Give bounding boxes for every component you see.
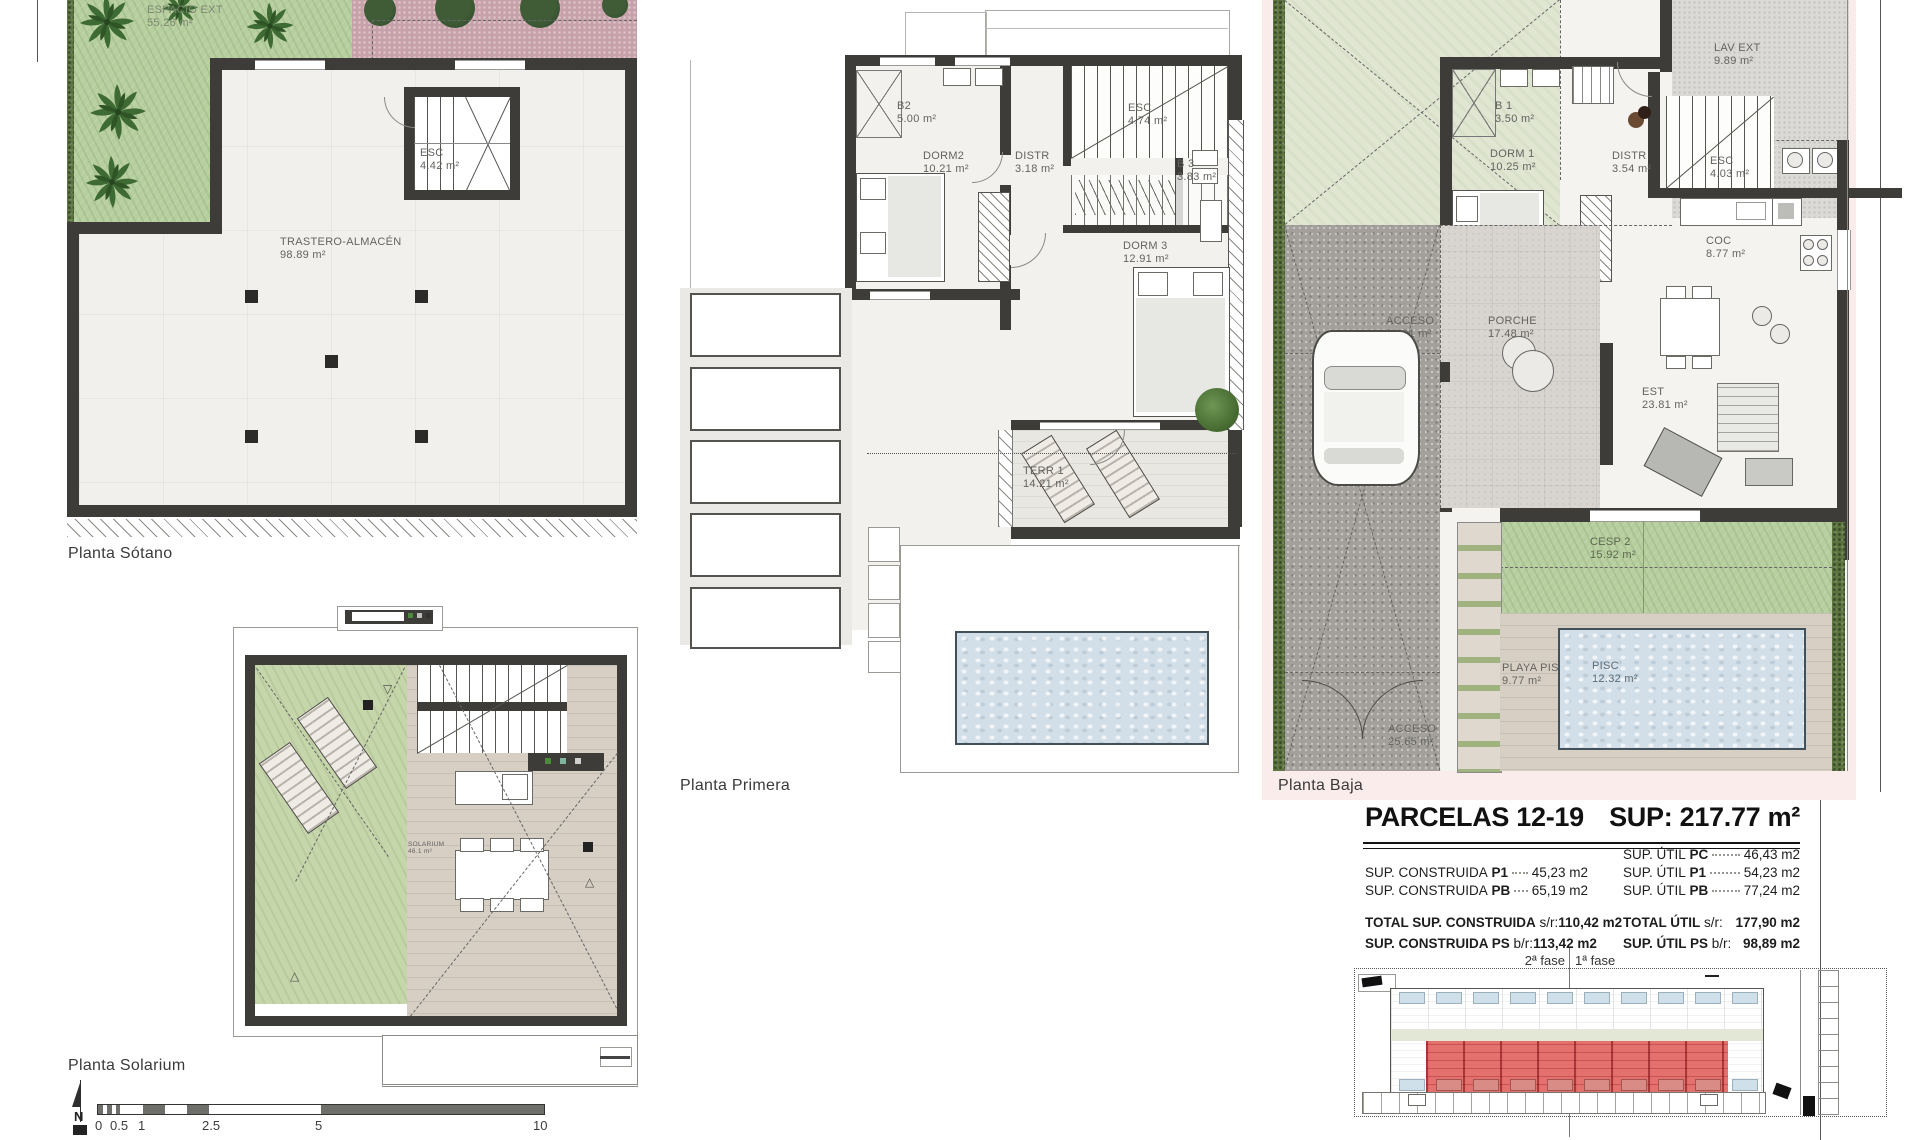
parking-bay (690, 440, 841, 504)
dotted-leader (1712, 890, 1739, 892)
entry-closet (1572, 66, 1614, 104)
frame-left-mark (37, 0, 38, 62)
wall-segment (1228, 55, 1242, 120)
small-store-box (868, 527, 900, 562)
room-label-coc: COC8.77 m² (1706, 235, 1745, 261)
slope-triangle: △ (290, 970, 299, 982)
road-line (1838, 970, 1839, 1115)
stair-landing-line (414, 143, 510, 144)
wall-segment (625, 58, 637, 517)
room-label-distr: DISTR3.54 m² (1612, 150, 1651, 176)
roof-drain (363, 700, 373, 710)
plan-planta-primera: B25.00 m² DORM210.21 m² DISTR3.18 m² ESC… (680, 0, 1240, 795)
kitchen-appliance-inner (1778, 203, 1794, 219)
palm-tree-icon (77, 0, 137, 52)
kitchen-dot (575, 758, 581, 764)
site-unit-pool-red (1436, 1079, 1462, 1091)
side-steps (1457, 522, 1502, 773)
sliding-door-gap (1590, 510, 1700, 522)
wall-segment (245, 655, 255, 1026)
room-label-esc: ESC4.74 m² (1128, 102, 1167, 128)
patio-dashed-border (372, 20, 637, 21)
wall-segment (245, 1016, 627, 1026)
site-unit-pool (1473, 992, 1499, 1004)
window-gap (1837, 230, 1851, 290)
site-unit-pool (1584, 992, 1610, 1004)
wall-segment (617, 655, 627, 1026)
summary-title: PARCELAS 12-19 (1365, 802, 1584, 833)
dotted-leader (1512, 872, 1528, 874)
row-label: SUP. ÚTIL P1 (1623, 865, 1706, 880)
deck-drain (583, 842, 593, 852)
car-windshield (1324, 366, 1406, 390)
scale-bar-segment (143, 1105, 165, 1114)
window-gap (955, 57, 1010, 66)
scale-tick-label: 1 (138, 1118, 145, 1133)
scale-bar-segment (98, 1105, 103, 1114)
chair (490, 838, 514, 852)
bathroom-fixture (943, 68, 971, 86)
wall-segment (67, 222, 222, 234)
kitchen-sink (1736, 202, 1766, 220)
roof-outline-line (985, 28, 1228, 29)
summary-sup-total: SUP: 217.77 m² (1600, 802, 1800, 833)
site-unit-pool-red (1473, 1079, 1499, 1091)
site-unit-pool (1695, 992, 1721, 1004)
sidewalk-detail (1700, 1094, 1718, 1106)
wall-segment (67, 505, 637, 517)
hedge-strip (1832, 522, 1845, 771)
table-total-row: TOTAL ÚTIL s/r:177,90 m2 (1623, 915, 1800, 930)
scale-bar-segment (107, 1105, 112, 1114)
dog-figure (1638, 106, 1651, 119)
round-table (1512, 350, 1554, 392)
scalebar-group: N 0 0.5 1 2.5 5 10 (60, 1075, 560, 1135)
bathroom-fixture (1500, 69, 1528, 87)
dotted-leader (1712, 854, 1739, 856)
room-label-espacio-ext: ESPACIO EXT55.26 m² (147, 4, 223, 30)
bathroom-fixture (1532, 69, 1560, 87)
dining-table (1660, 298, 1720, 356)
plan-planta-baja: LAV EXT9.89 m² B 13.50 m² ESC4.03 m² DIS… (1262, 0, 1856, 800)
row-label: TOTAL SUP. CONSTRUIDA s/r: (1365, 915, 1558, 930)
small-store-box (868, 603, 900, 638)
lawn-dashed-line (1500, 567, 1832, 568)
slope-triangle: △ (585, 876, 594, 888)
wall-segment (845, 55, 856, 300)
wall-segment (245, 655, 627, 665)
scale-tick-label: 0 (95, 1118, 102, 1133)
chair (1692, 286, 1712, 299)
wall-segment (67, 222, 79, 517)
garden-dashed-edge (1560, 0, 1561, 180)
frame-right-line-upper (1880, 0, 1881, 792)
site-unit-pool (1732, 1079, 1758, 1091)
burner (1803, 255, 1814, 266)
bed-blanket (888, 176, 941, 277)
chair (1692, 356, 1712, 369)
site-garden-band (1391, 1029, 1763, 1041)
scale-tick-label: 5 (315, 1118, 322, 1133)
washer-drum (1817, 152, 1833, 168)
shower (1452, 69, 1496, 137)
planter-dot (426, 613, 431, 618)
patio-dashed-border (372, 20, 373, 60)
room-label-dorm3: DORM 312.91 m² (1123, 240, 1169, 266)
site-unit-pool (1732, 992, 1758, 1004)
room-label-solarium: SOLARIUM46.1 m² (408, 841, 444, 855)
dotted-leader (1710, 872, 1740, 874)
site-unit-pool-red (1621, 1079, 1647, 1091)
window-gap (870, 291, 930, 300)
lawn-seam (1643, 522, 1644, 613)
outdoor-kitchen-bar (528, 753, 604, 771)
plan-planta-sotano: ESPACIO EXT55.26 m² ESC4.42 m² TRASTERO-… (67, 0, 637, 565)
site-unit-pool-red (1695, 1079, 1721, 1091)
road-lane-ticks (1818, 970, 1838, 1115)
kitchen-dot (545, 758, 551, 764)
swimming-pool (955, 631, 1209, 745)
bathroom-cabinet (1200, 200, 1222, 242)
scale-bar-segment (321, 1105, 544, 1114)
room-label-esc: ESC4.03 m² (1710, 155, 1749, 181)
pillow (1138, 272, 1168, 296)
north-label: N (74, 1109, 83, 1124)
car-icon (1312, 330, 1420, 486)
room-label-terr1: TERR 114.21 m² (1023, 465, 1069, 491)
wardrobe (978, 192, 1010, 282)
row-label: SUP. CONSTRUIDA P1 (1365, 865, 1508, 880)
site-unit-pool-red (1547, 1079, 1573, 1091)
site-unit-pool (1547, 992, 1573, 1004)
wall-segment (1660, 0, 1672, 72)
title-rule (1363, 842, 1800, 844)
row-value: 54,23 m2 (1744, 865, 1800, 880)
roof-planter-slot (352, 612, 404, 621)
room-label-dorm2: DORM210.21 m² (923, 150, 969, 176)
caption-planta-sotano: Planta Sótano (68, 545, 172, 563)
palm-tree-icon (83, 153, 141, 211)
table-total-row: TOTAL SUP. CONSTRUIDA s/r:110,42 m2 (1365, 915, 1588, 930)
row-label: SUP. ÚTIL PB (1623, 883, 1708, 898)
plan-planta-solarium: ▽ △ SOLARIUM46.1 m² △ (227, 588, 637, 1088)
row-value: 46,43 m2 (1744, 847, 1800, 862)
north-arrow-flag (72, 1083, 80, 1107)
pillar (325, 355, 338, 368)
pillow (860, 178, 886, 200)
parking-bay (690, 293, 841, 357)
slope-triangle: ▽ (383, 683, 392, 695)
site-unit-pool (1621, 992, 1647, 1004)
site-unit-pool-red (1584, 1079, 1610, 1091)
row-value: 77,24 m2 (1744, 883, 1800, 898)
roof-outline-small (905, 12, 987, 59)
north-tick-mark (1705, 975, 1719, 977)
window-gap (1040, 422, 1160, 430)
caption-planta-primera: Planta Primera (680, 777, 790, 795)
round-chair (1770, 324, 1790, 344)
room-label-trastero: TRASTERO-ALMACÉN98.89 m² (280, 236, 402, 262)
row-value: 110,42 m2 (1558, 915, 1622, 930)
pillow (1193, 272, 1223, 296)
burner (1817, 239, 1828, 250)
parking-bay (690, 513, 841, 577)
party-wall-hatch (1228, 120, 1244, 430)
round-chair (1752, 306, 1772, 326)
table-row: SUP. CONSTRUIDA PB65,19 m2 (1365, 883, 1588, 898)
burner (1803, 239, 1814, 250)
sidewalk-detail (1408, 1094, 1426, 1106)
swimming-pool (1558, 628, 1806, 750)
table-row: SUP. CONSTRUIDA P145,23 m2 (1365, 865, 1588, 880)
window-gap (255, 60, 325, 70)
room-label-distr: DISTR3.18 m² (1015, 150, 1054, 176)
pillar (415, 290, 428, 303)
room-label-esc: ESC4.42 m² (420, 147, 459, 173)
wall-segment (1228, 430, 1242, 527)
table-row: SUP. ÚTIL P154,23 m2 (1623, 865, 1800, 880)
terrace-hatch-wall (998, 430, 1013, 527)
chair (460, 898, 484, 912)
plant-icon (1195, 388, 1239, 432)
chair (1666, 356, 1686, 369)
site-unit-pool (1399, 992, 1425, 1004)
parking-bay (690, 587, 841, 649)
room-label-dorm1: DORM 110.25 m² (1490, 148, 1536, 174)
row-label: SUP. ÚTIL PC (1623, 847, 1708, 862)
room-label-b1: B 13.50 m² (1495, 100, 1534, 126)
road-line (1800, 970, 1801, 1115)
palm-tree-icon (87, 81, 149, 143)
scale-tick-label: 2.5 (202, 1118, 220, 1133)
window-gap (455, 60, 525, 70)
washer-drum (1787, 152, 1803, 168)
chair (460, 838, 484, 852)
tv-unit (1717, 383, 1779, 452)
site-unit-pool (1399, 1079, 1425, 1091)
site-building-block (1390, 988, 1764, 1094)
planter-dot (417, 613, 422, 618)
wall-segment (1660, 188, 1902, 198)
road-black-bar (1803, 1096, 1815, 1116)
kitchen-dot (560, 758, 566, 764)
section-dotted-line (867, 453, 1237, 454)
dotted-leader (1514, 890, 1527, 892)
site-unit-pool (1658, 992, 1684, 1004)
sideboard (1745, 458, 1793, 486)
driveway-dashed-line (1285, 672, 1440, 673)
scale-bar (97, 1104, 545, 1115)
table-row: SUP. ÚTIL PC46,43 m2 (1623, 847, 1800, 862)
neighbor-boundary-line (690, 60, 691, 290)
car-rear-window (1324, 448, 1404, 464)
chair (1666, 286, 1686, 299)
scale-bar-segment (116, 1105, 121, 1114)
scale-bar-segment (187, 1105, 209, 1114)
small-store-box (868, 565, 900, 600)
pillar (245, 290, 258, 303)
room-label-cesp2: CESP 215.92 m² (1590, 536, 1636, 562)
plan-edge-line (1847, 0, 1848, 771)
annex-detail-line (600, 1056, 630, 1059)
parking-bay (690, 367, 841, 431)
site-unit-pool-red (1510, 1079, 1536, 1091)
car-roof (1324, 392, 1404, 442)
site-plan (1350, 945, 1895, 1140)
site-unit-pool-red (1658, 1079, 1684, 1091)
summary-table: PARCELAS 12-19 SUP: 217.77 m² SUP. ÚTIL … (1360, 798, 1802, 968)
scale-tick-label: 0.5 (110, 1118, 128, 1133)
bathroom-fixture (975, 68, 1003, 86)
sotano-hedge-strip (67, 0, 74, 228)
row-value: 177,90 m2 (1735, 915, 1800, 930)
hedge-strip (1273, 0, 1285, 771)
pillar (245, 430, 258, 443)
scale-tick-label: 10 (533, 1118, 547, 1133)
wall-segment (210, 58, 222, 228)
planter-dot (408, 613, 413, 618)
wall-segment (1011, 527, 1240, 539)
room-label-pisc: PISC12.32 m² (1592, 660, 1638, 686)
caption-planta-baja: Planta Baja (1278, 777, 1363, 795)
room-label-b3: B 33.83 m² (1177, 158, 1216, 184)
pillow (1456, 196, 1478, 222)
chair (520, 898, 544, 912)
burner (1817, 255, 1828, 266)
row-label: TOTAL ÚTIL s/r: (1623, 915, 1723, 930)
room-label-b2: B25.00 m² (897, 100, 936, 126)
row-value: 65,19 m2 (1532, 883, 1588, 898)
caption-planta-solarium: Planta Solarium (68, 1057, 185, 1075)
ground-hatch-strip (67, 519, 637, 537)
drawing-sheet: ESPACIO EXT55.26 m² ESC4.42 m² TRASTERO-… (0, 0, 1920, 1140)
pillow (860, 232, 886, 254)
table-row: SUP. ÚTIL PB77,24 m2 (1623, 883, 1800, 898)
wall-segment (1063, 66, 1071, 166)
palm-tree-icon (244, 0, 296, 52)
window-gap (880, 57, 935, 66)
north-base (73, 1125, 87, 1135)
room-label-porche: PORCHE17.48 m² (1488, 315, 1537, 341)
row-value: 45,23 m2 (1532, 865, 1588, 880)
room-label-est: EST23.81 m² (1642, 386, 1688, 412)
row-label: SUP. CONSTRUIDA PB (1365, 883, 1510, 898)
site-unit-pool (1436, 992, 1462, 1004)
site-unit-pool (1510, 992, 1536, 1004)
pillar (415, 430, 428, 443)
shower (856, 70, 902, 138)
closet-rail (1075, 180, 1175, 215)
room-label-lav-ext: LAV EXT9.89 m² (1714, 42, 1761, 68)
